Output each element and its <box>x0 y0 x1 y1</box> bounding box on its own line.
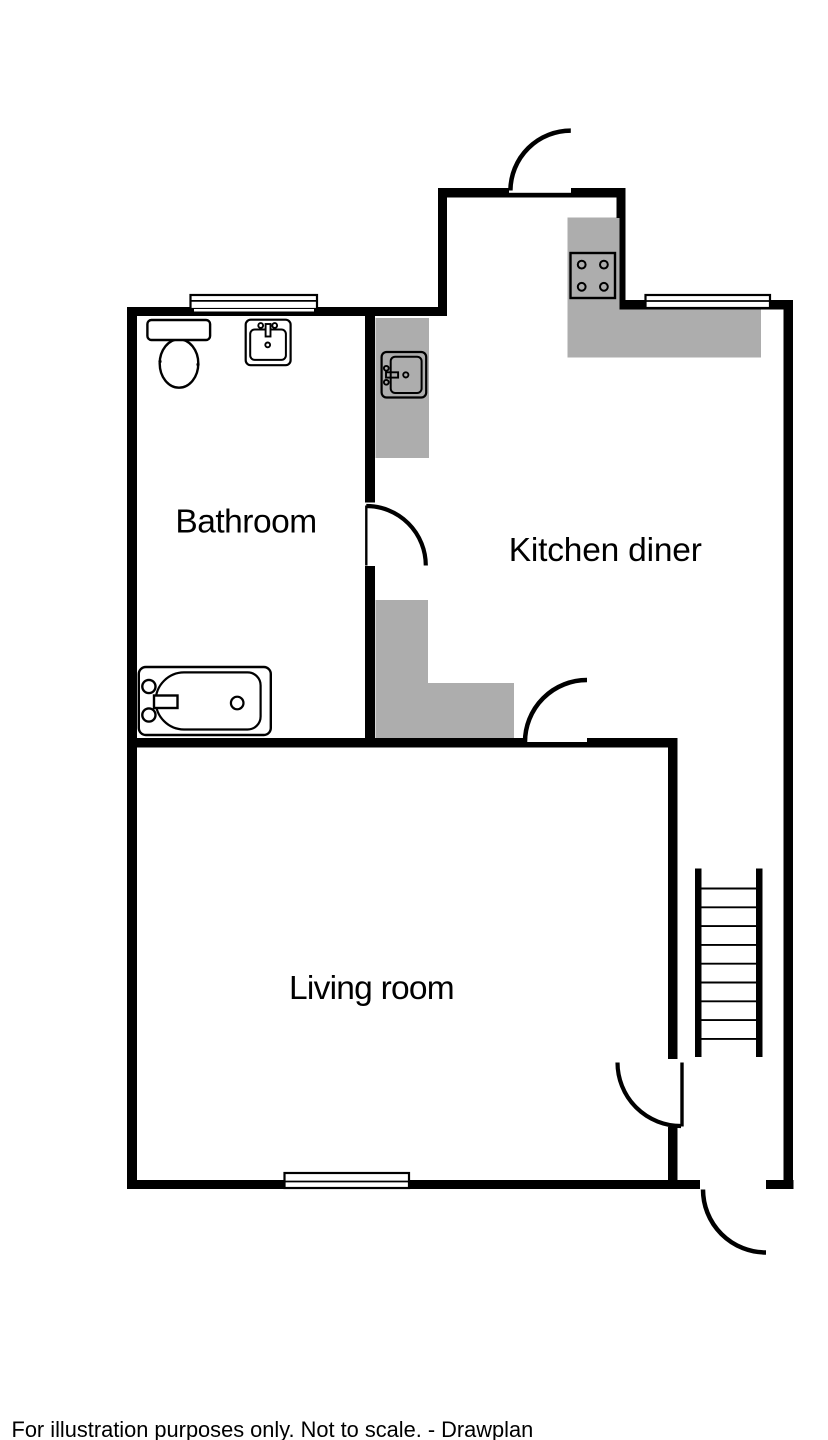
svg-text:For illustration purposes only: For illustration purposes only. Not to s… <box>12 1417 534 1440</box>
svg-text:Living room: Living room <box>289 970 454 1007</box>
svg-text:Bathroom: Bathroom <box>175 504 316 541</box>
svg-text:Kitchen diner: Kitchen diner <box>509 532 702 569</box>
